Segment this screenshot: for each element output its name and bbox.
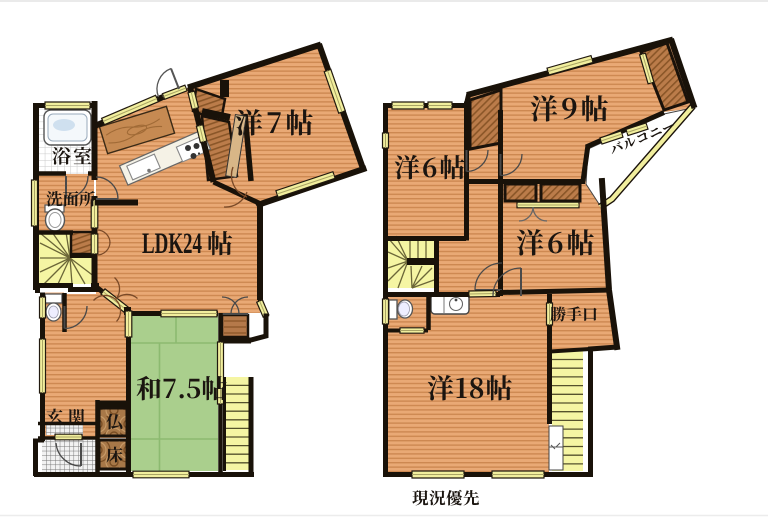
svg-text:LDK24: LDK24 — [142, 227, 202, 260]
